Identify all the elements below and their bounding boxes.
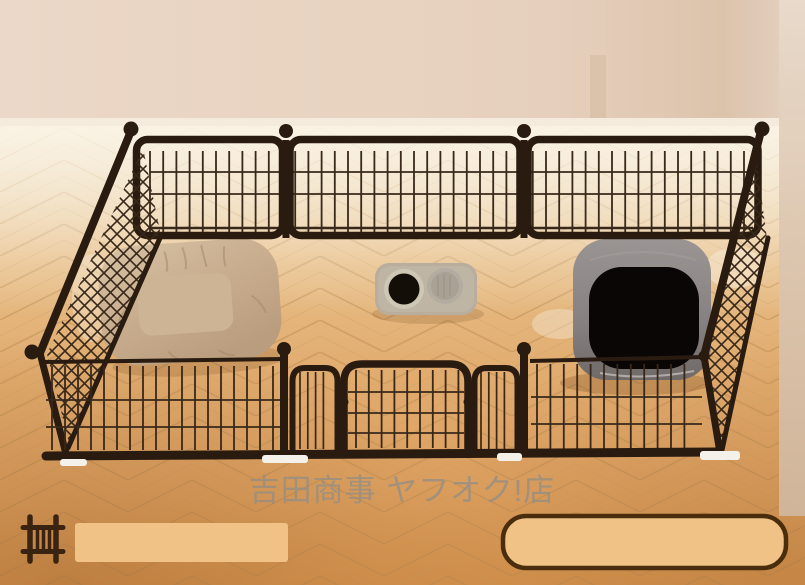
watermark-text: 吉田商事 ヤフオク!店 bbox=[249, 473, 556, 508]
gate-hinge bbox=[340, 398, 349, 407]
fence-foot bbox=[700, 451, 740, 460]
gate-latch bbox=[464, 398, 473, 407]
front-bottom-rail bbox=[46, 452, 718, 456]
wall-smudge bbox=[590, 55, 606, 125]
food-bowl-empty-inner bbox=[431, 272, 459, 300]
feeding-station bbox=[372, 263, 484, 324]
footer-left-banner bbox=[75, 523, 288, 562]
fence-foot bbox=[60, 459, 87, 466]
fence-foot bbox=[262, 455, 308, 463]
finial bbox=[517, 342, 531, 356]
scene: 吉田商事 ヤフオク!店 bbox=[0, 0, 805, 585]
fence-foot bbox=[497, 453, 522, 461]
footer-outline-box bbox=[503, 516, 786, 568]
pet-bed-center bbox=[136, 272, 234, 336]
food-bowl-dark-contents bbox=[389, 274, 420, 305]
back-wall bbox=[0, 0, 805, 126]
finial bbox=[277, 342, 291, 356]
product-photo: 吉田商事 ヤフオク!店 bbox=[0, 0, 805, 585]
finial bbox=[755, 122, 770, 137]
litter-box-opening bbox=[589, 267, 699, 369]
finial bbox=[279, 124, 293, 138]
finial bbox=[699, 351, 710, 362]
curtain-strip bbox=[779, 0, 805, 516]
finial bbox=[124, 122, 139, 137]
finial bbox=[517, 124, 531, 138]
finial bbox=[25, 345, 40, 360]
